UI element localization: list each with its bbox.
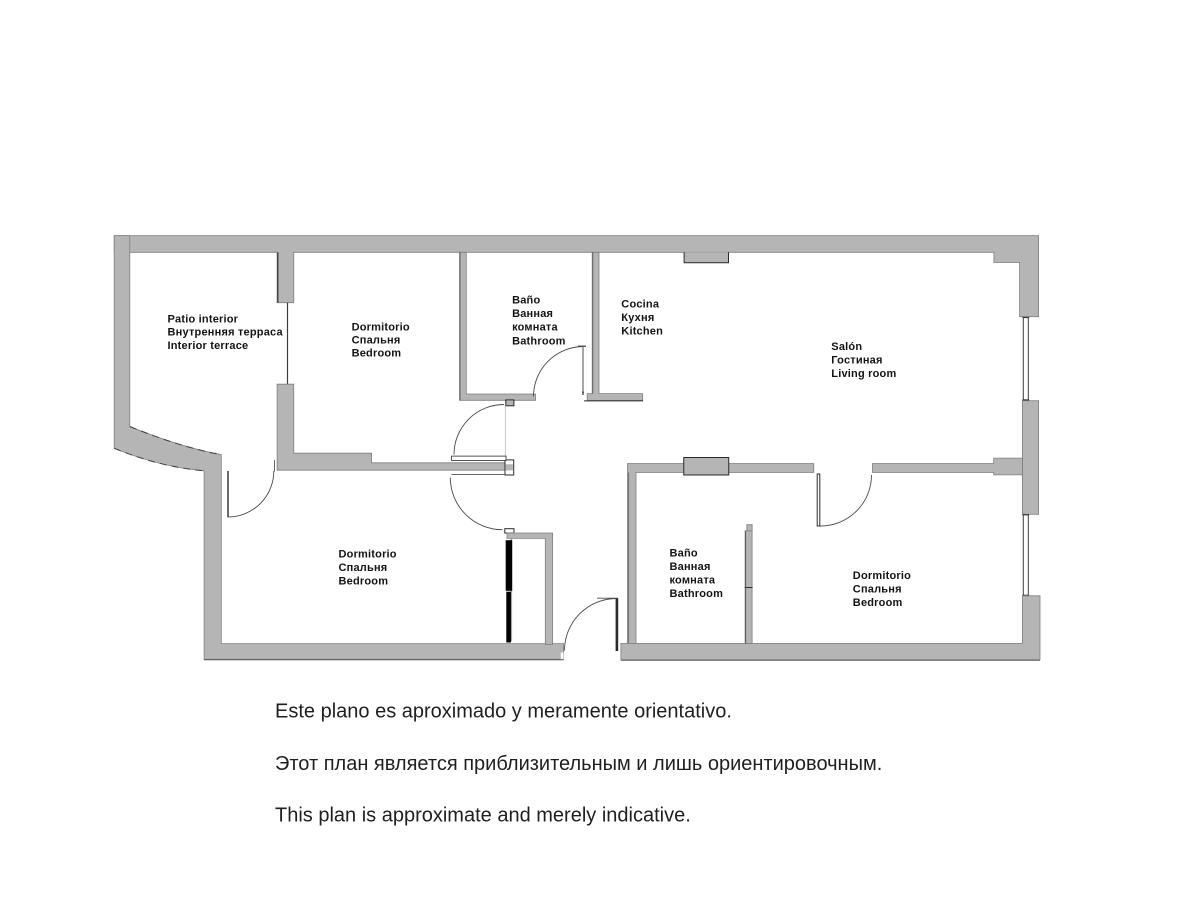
svg-text:Kitchen: Kitchen (621, 326, 663, 338)
svg-text:Baño: Baño (512, 294, 540, 306)
svg-text:Interior terrace: Interior terrace (168, 340, 249, 352)
svg-text:Bathroom: Bathroom (512, 335, 566, 347)
svg-text:Baño: Baño (670, 548, 698, 560)
svg-text:Cocina: Cocina (621, 298, 660, 310)
svg-text:This plan is approximate and m: This plan is approximate and merely indi… (275, 805, 691, 827)
svg-text:комната: комната (512, 322, 558, 334)
svg-text:Bathroom: Bathroom (670, 588, 724, 600)
svg-text:Bedroom: Bedroom (853, 597, 903, 609)
svg-text:Dormitorio: Dormitorio (339, 549, 397, 561)
svg-text:Гостиная: Гостиная (831, 355, 882, 367)
svg-text:Спальня: Спальня (853, 584, 902, 596)
svg-text:Salón: Salón (831, 341, 862, 353)
svg-text:Кухня: Кухня (621, 312, 654, 324)
svg-text:Спальня: Спальня (352, 335, 401, 347)
svg-text:Внутренняя терраса: Внутренняя терраса (168, 327, 284, 339)
svg-text:Ванная: Ванная (670, 561, 711, 573)
svg-text:комната: комната (670, 575, 716, 587)
svg-text:Living room: Living room (831, 368, 896, 380)
svg-text:Bedroom: Bedroom (352, 348, 402, 360)
svg-text:Ванная: Ванная (512, 308, 553, 320)
svg-text:Bedroom: Bedroom (339, 576, 389, 588)
svg-text:Patio interior: Patio interior (168, 313, 239, 325)
svg-text:Dormitorio: Dormitorio (853, 570, 911, 582)
svg-text:Этот план является приблизител: Этот план является приблизительным и лиш… (275, 753, 882, 775)
svg-text:Спальня: Спальня (339, 562, 388, 574)
svg-text:Dormitorio: Dormitorio (352, 321, 410, 333)
svg-text:Este plano es aproximado y mer: Este plano es aproximado y meramente ori… (275, 701, 732, 723)
